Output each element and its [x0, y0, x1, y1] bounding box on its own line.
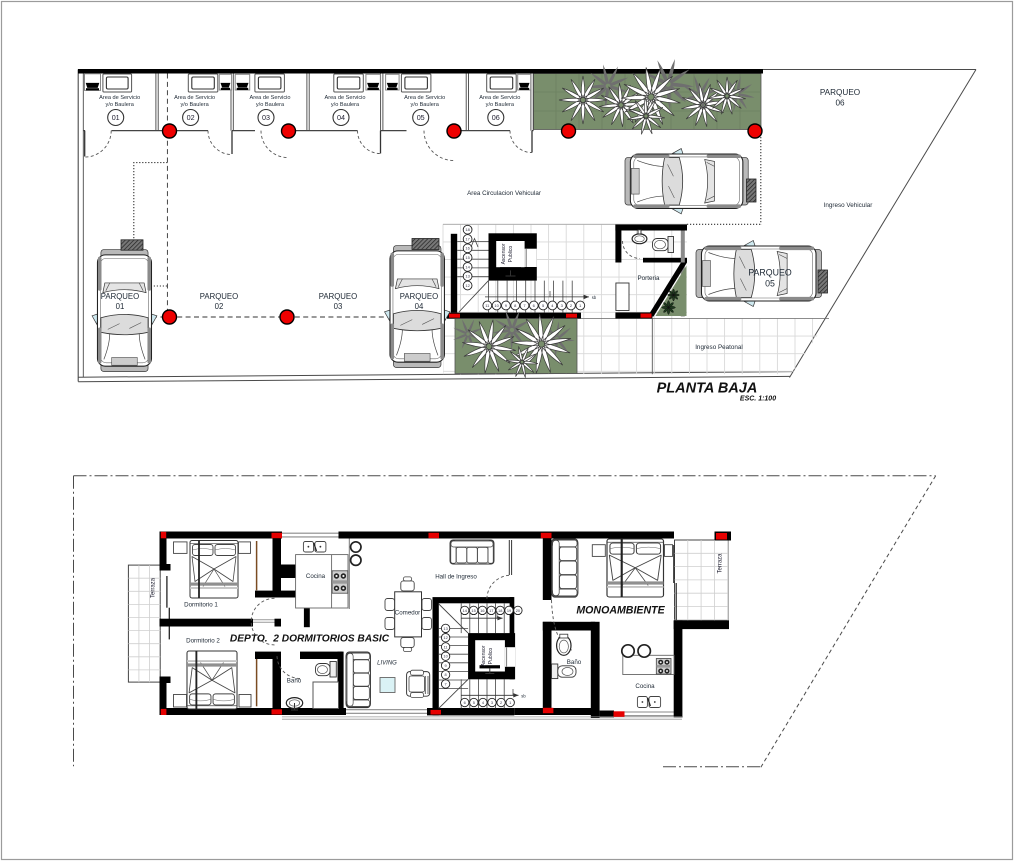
- svg-text:Ingreso Peatonal: Ingreso Peatonal: [695, 344, 743, 351]
- svg-text:11: 11: [444, 644, 448, 649]
- svg-text:9: 9: [445, 663, 447, 668]
- svg-text:sb: sb: [592, 295, 597, 300]
- svg-text:Area de Servicio: Area de Servicio: [99, 95, 140, 101]
- svg-text:y/o Baulera: y/o Baulera: [486, 102, 515, 108]
- svg-text:Ingreso Vehicular: Ingreso Vehicular: [824, 202, 873, 209]
- svg-text:18: 18: [498, 608, 502, 613]
- svg-text:PARQUEO: PARQUEO: [200, 292, 238, 301]
- svg-text:Publico: Publico: [508, 246, 514, 263]
- svg-text:04: 04: [337, 113, 345, 122]
- svg-text:7: 7: [445, 681, 447, 686]
- svg-text:03: 03: [334, 302, 343, 311]
- svg-text:ESC. 1:100: ESC. 1:100: [740, 396, 776, 403]
- svg-text:5: 5: [473, 700, 475, 705]
- svg-text:12: 12: [443, 635, 447, 640]
- svg-text:PARQUEO: PARQUEO: [400, 292, 438, 301]
- svg-text:8: 8: [445, 672, 447, 677]
- svg-text:Porteria: Porteria: [637, 275, 660, 282]
- svg-text:PARQUEO: PARQUEO: [319, 292, 357, 301]
- svg-text:Area Circulacion Vehicular: Area Circulacion Vehicular: [467, 190, 541, 197]
- svg-text:Area de Servicio: Area de Servicio: [479, 95, 520, 101]
- svg-text:18: 18: [465, 227, 470, 232]
- svg-text:19: 19: [507, 608, 511, 613]
- svg-text:04: 04: [415, 302, 424, 311]
- svg-text:Terraza: Terraza: [151, 577, 157, 598]
- svg-text:02: 02: [187, 113, 195, 122]
- svg-text:13: 13: [465, 274, 470, 279]
- svg-text:y/o Baulera: y/o Baulera: [331, 102, 360, 108]
- svg-text:Area de Servicio: Area de Servicio: [174, 95, 215, 101]
- svg-text:3: 3: [491, 700, 493, 705]
- svg-text:y/o Baulera: y/o Baulera: [180, 102, 209, 108]
- svg-text:15: 15: [465, 255, 470, 260]
- svg-text:Area de Servicio: Area de Servicio: [249, 95, 290, 101]
- svg-text:06: 06: [492, 113, 500, 122]
- svg-text:Terraza: Terraza: [718, 553, 724, 574]
- svg-text:02: 02: [215, 302, 224, 311]
- svg-text:16: 16: [480, 608, 484, 613]
- svg-text:17: 17: [489, 608, 493, 613]
- svg-text:Ascensor: Ascensor: [481, 645, 487, 666]
- svg-text:16: 16: [465, 246, 470, 251]
- svg-text:Dormitorio 1: Dormitorio 1: [184, 601, 218, 608]
- svg-text:y/o Baulera: y/o Baulera: [411, 102, 440, 108]
- svg-text:Area de Servicio: Area de Servicio: [404, 95, 445, 101]
- svg-text:Baño: Baño: [287, 677, 302, 684]
- svg-text:Area de Servicio: Area de Servicio: [324, 95, 365, 101]
- svg-text:Ascensor: Ascensor: [501, 243, 507, 264]
- svg-text:14: 14: [465, 264, 470, 269]
- svg-text:12: 12: [465, 283, 470, 288]
- svg-text:2: 2: [500, 700, 502, 705]
- svg-text:PARQUEO: PARQUEO: [820, 88, 860, 97]
- svg-text:Publico: Publico: [488, 648, 494, 665]
- svg-text:03: 03: [262, 113, 270, 122]
- svg-text:10: 10: [494, 303, 499, 308]
- svg-text:MONOAMBIENTE: MONOAMBIENTE: [576, 605, 665, 617]
- svg-text:Baño: Baño: [567, 659, 582, 666]
- svg-text:01: 01: [112, 113, 120, 122]
- svg-text:Hall de Ingreso: Hall de Ingreso: [435, 573, 477, 580]
- svg-text:05: 05: [417, 113, 425, 122]
- svg-text:LIVING: LIVING: [377, 660, 397, 666]
- svg-text:05: 05: [765, 279, 775, 289]
- svg-text:PARQUEO: PARQUEO: [101, 292, 139, 301]
- svg-text:06: 06: [835, 99, 845, 108]
- svg-text:17: 17: [465, 236, 470, 241]
- svg-text:15: 15: [471, 608, 475, 613]
- svg-text:1: 1: [509, 700, 511, 705]
- svg-text:Dormitorio 2: Dormitorio 2: [186, 638, 220, 645]
- svg-text:Comedor: Comedor: [395, 610, 420, 617]
- svg-text:01: 01: [116, 302, 125, 311]
- svg-text:PLANTA BAJA: PLANTA BAJA: [657, 381, 758, 397]
- svg-text:sb: sb: [521, 693, 526, 698]
- svg-text:DEPTO. 2 DORMITORIOS BASIC: DEPTO. 2 DORMITORIOS BASIC: [230, 634, 390, 645]
- svg-text:Cocina: Cocina: [306, 573, 326, 580]
- svg-text:PARQUEO: PARQUEO: [748, 268, 791, 278]
- svg-text:Cocina: Cocina: [635, 683, 655, 690]
- svg-text:y/o Baulera: y/o Baulera: [256, 102, 285, 108]
- svg-text:6: 6: [464, 700, 466, 705]
- svg-text:y/o Baulera: y/o Baulera: [106, 102, 135, 108]
- svg-text:13: 13: [443, 626, 447, 631]
